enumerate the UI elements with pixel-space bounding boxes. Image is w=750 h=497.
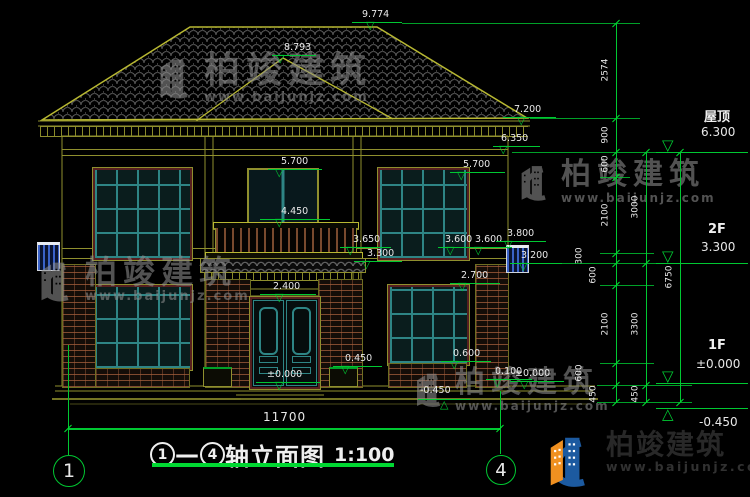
elevation-marker-triangle: ▽: [450, 359, 458, 370]
elevation-marker-value: 3.600: [475, 235, 502, 245]
dimension-chain-line: [680, 152, 681, 402]
extension-line: [600, 285, 654, 286]
dimension-chain-value: 2100: [602, 313, 611, 336]
elevation-marker-triangle: ▽: [275, 292, 283, 303]
elevation-marker-triangle: ▽: [517, 115, 525, 126]
dimension-chain-value: 450: [590, 385, 599, 402]
floor-level-name: 2F: [708, 222, 726, 237]
floor-level-triangle: ▽: [662, 369, 674, 384]
elevation-marker-triangle: ▽: [493, 377, 501, 388]
elevation-marker-triangle: ▽: [520, 379, 528, 390]
floor-level-elevation: 6.300: [701, 125, 735, 139]
elevation-marker-value: 7.200: [514, 105, 541, 115]
floor-level-triangle: ▽: [662, 249, 674, 264]
elevation-marker-triangle: ▽: [446, 245, 454, 256]
belt-course-upper: [62, 149, 508, 156]
floor-level-elevation: -0.450: [699, 415, 738, 429]
elevation-marker-line: [260, 294, 316, 295]
elevation-marker-line: [441, 361, 491, 362]
elevation-marker-triangle: ▽: [362, 259, 370, 270]
entrance-steps: [230, 391, 330, 399]
cad-elevation-drawing: 柏竣建筑www.baijunjz.com柏竣建筑www.baijunjz.com…: [0, 0, 750, 497]
elevation-marker-value: 6.350: [501, 134, 528, 144]
elevation-marker-value: 2.400: [273, 282, 300, 292]
eave-fascia: [40, 126, 528, 137]
floor-level-triangle: △: [662, 407, 674, 422]
axis-line: [68, 345, 69, 455]
dimension-chain-value: 600: [590, 266, 599, 283]
dimension-chain-value: 2100: [602, 204, 611, 227]
overall-dim-line: [68, 428, 500, 430]
extension-line: [600, 363, 654, 364]
elevation-marker-triangle: △: [440, 399, 448, 410]
floor-level-triangle: ▽: [662, 138, 674, 153]
extension-line: [402, 23, 640, 24]
floor-level-elevation: ±0.000: [696, 357, 740, 371]
title-underline: [152, 463, 394, 467]
elevation-marker-value: 5.700: [281, 157, 308, 167]
elevation-marker-value: 9.774: [362, 10, 389, 20]
axis-line: [500, 391, 501, 454]
window-2f-left: [93, 168, 192, 260]
elevation-marker-triangle: ▽: [276, 53, 284, 64]
dimension-chain-value: 600: [576, 364, 585, 381]
elevation-marker-line: [260, 219, 330, 220]
elevation-marker-triangle: ▽: [341, 364, 349, 375]
elevation-marker-value: 0.450: [345, 354, 372, 364]
dimension-chain-value: 600: [602, 155, 611, 172]
elevation-marker-triangle: ▽: [499, 144, 507, 155]
elevation-marker-value: 2.700: [461, 271, 488, 281]
extension-line: [600, 253, 654, 254]
elevation-marker-value: -0.450: [420, 386, 451, 396]
elevation-marker-value: ±0.000: [515, 369, 550, 379]
elevation-marker-line: [510, 381, 564, 382]
elevation-marker-value: 5.700: [463, 160, 490, 170]
planter-left: [203, 367, 232, 387]
elevation-marker-value: 8.793: [284, 43, 311, 53]
elevation-marker-triangle: ▽: [457, 170, 465, 181]
elevation-marker-value: 0.600: [453, 349, 480, 359]
axis-bubble: 1: [53, 455, 85, 487]
floor-level-elevation: 3.300: [701, 240, 735, 254]
elevation-marker-line: [256, 382, 320, 383]
elevation-marker-triangle: ▽: [458, 281, 466, 292]
window-1f-left: [93, 285, 192, 370]
dimension-chain-value: 3300: [632, 313, 641, 336]
elevation-marker-value: 3.200: [521, 251, 548, 261]
dimension-chain-value: 450: [632, 385, 641, 402]
elevation-marker-value: 4.450: [281, 207, 308, 217]
extension-line: [597, 385, 692, 386]
elevation-marker-value: 3.800: [507, 229, 534, 239]
balcony-balusters: [215, 228, 357, 252]
ac-unit-left: [37, 242, 60, 271]
elevation-marker-triangle: ▽: [275, 167, 283, 178]
extension-line: [597, 402, 692, 403]
dimension-chain-value: 3000: [632, 196, 641, 219]
elevation-marker-triangle: ▽: [275, 380, 283, 391]
extension-line: [600, 177, 630, 178]
dimension-chain-line: [646, 152, 647, 402]
footer-brand-name: 柏竣建筑: [606, 430, 750, 459]
extension-line: [512, 152, 692, 153]
footer-brand-logo: 柏竣建筑 www.baijunjz.com: [528, 430, 750, 492]
dimension-chain-value: 6750: [666, 266, 675, 289]
elevation-marker-triangle: ▽: [346, 245, 354, 256]
brand-logo-icon: [528, 430, 600, 492]
footer-brand-url: www.baijunjz.com: [606, 459, 750, 474]
floor-level-name: 屋顶: [704, 106, 730, 125]
floor-level-name: 1F: [708, 338, 726, 353]
extension-line: [530, 118, 640, 119]
overall-dim-value: 11700: [263, 411, 306, 423]
elevation-marker-value: 3.300: [367, 249, 394, 259]
brick-under-window-left: [95, 368, 190, 388]
dimension-chain-value: 900: [602, 126, 611, 143]
dimension-chain-line: [616, 23, 617, 402]
elevation-marker-triangle: ▽: [474, 245, 482, 256]
elevation-marker-triangle: ▽: [275, 217, 283, 228]
elevation-marker-triangle: ▽: [366, 20, 374, 31]
axis-bubble: 4: [486, 455, 516, 485]
elevation-marker-line: [352, 22, 402, 23]
extension-line: [512, 263, 692, 264]
elevation-marker-value: ±0.000: [267, 370, 302, 380]
elevation-marker-triangle: ▽: [504, 239, 512, 250]
elevation-marker-value: 3.600: [445, 235, 472, 245]
dimension-chain-value: 2574: [602, 59, 611, 82]
porch-canopy-tiles: [200, 258, 366, 273]
elevation-marker-value: 3.650: [353, 235, 380, 245]
